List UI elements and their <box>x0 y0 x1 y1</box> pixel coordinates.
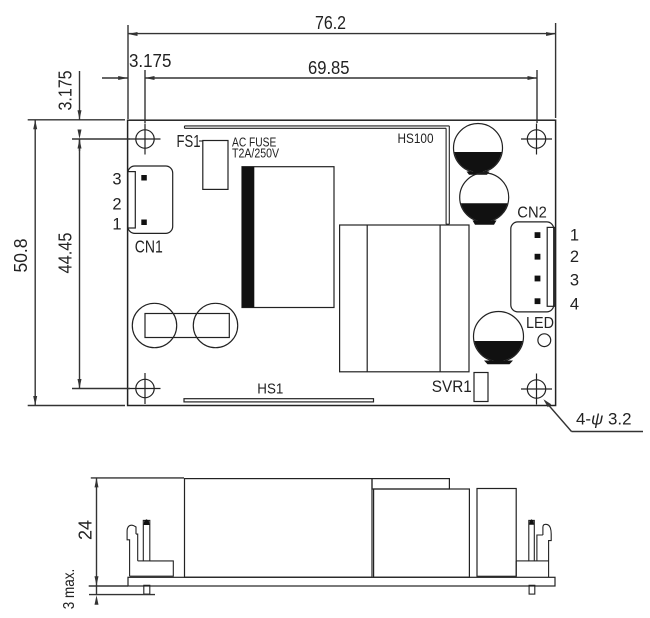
svg-text:4-ψ 3.2: 4-ψ 3.2 <box>576 410 632 429</box>
svg-text:3.175: 3.175 <box>129 51 171 71</box>
svg-text:SVR1: SVR1 <box>432 377 472 396</box>
svg-text:4: 4 <box>570 295 579 313</box>
svg-text:3.175: 3.175 <box>55 71 75 111</box>
svg-text:CN1: CN1 <box>135 237 163 257</box>
svg-text:LED: LED <box>526 315 554 332</box>
svg-text:3: 3 <box>570 272 579 290</box>
svg-text:2: 2 <box>570 248 579 266</box>
svg-text:1: 1 <box>112 216 121 234</box>
svg-text:2: 2 <box>112 195 121 213</box>
svg-text:76.2: 76.2 <box>315 13 346 33</box>
svg-text:3 max.: 3 max. <box>61 569 78 610</box>
svg-text:CN2: CN2 <box>517 204 547 221</box>
svg-text:24: 24 <box>76 520 96 540</box>
svg-text:44.45: 44.45 <box>55 233 75 274</box>
svg-text:T2A/250V: T2A/250V <box>232 146 279 161</box>
svg-text:1: 1 <box>570 227 579 245</box>
svg-text:3: 3 <box>112 171 121 189</box>
svg-text:50.8: 50.8 <box>11 239 31 273</box>
svg-text:FS1: FS1 <box>177 131 201 151</box>
svg-text:HS100: HS100 <box>398 131 434 146</box>
svg-text:69.85: 69.85 <box>308 58 350 78</box>
svg-text:HS1: HS1 <box>257 381 283 398</box>
